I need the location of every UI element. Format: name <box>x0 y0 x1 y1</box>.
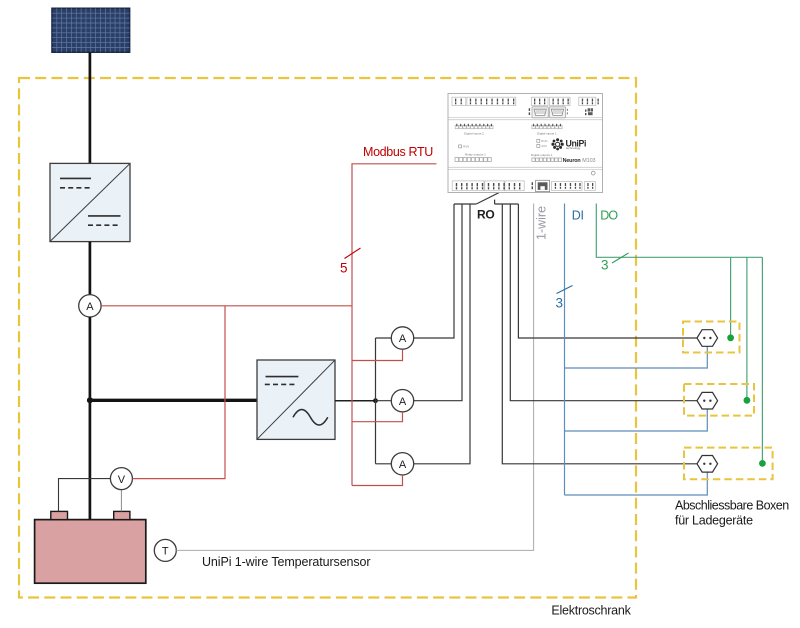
svg-text:3: 3 <box>556 296 564 311</box>
svg-text:RUN: RUN <box>541 139 547 143</box>
svg-text:technology: technology <box>566 146 581 150</box>
svg-text:A: A <box>86 301 94 313</box>
svg-text:3: 3 <box>601 258 609 273</box>
svg-text:A: A <box>399 396 407 408</box>
svg-text:Modbus RTU: Modbus RTU <box>363 145 433 159</box>
svg-text:Abschliessbare Boxen: Abschliessbare Boxen <box>675 499 789 513</box>
svg-text:Digital inputs 1: Digital inputs 1 <box>537 131 557 135</box>
svg-text:DO: DO <box>600 208 618 222</box>
svg-text:RUN: RUN <box>463 145 469 149</box>
svg-text:Digital inputs 2: Digital inputs 2 <box>464 131 484 135</box>
svg-text:Neuron: Neuron <box>563 158 581 164</box>
svg-text:M103: M103 <box>582 158 595 164</box>
svg-text:Relay outputs 1: Relay outputs 1 <box>465 153 486 157</box>
svg-text:RO: RO <box>477 208 494 222</box>
svg-text:A: A <box>399 333 407 345</box>
svg-text:1-wire: 1-wire <box>535 206 549 240</box>
svg-text:Elektroschrank: Elektroschrank <box>551 604 631 618</box>
svg-text:V: V <box>118 474 126 486</box>
svg-text:T: T <box>162 546 169 558</box>
svg-text:DI: DI <box>572 208 584 222</box>
svg-text:UniPi 1-wire Temperatursensor: UniPi 1-wire Temperatursensor <box>202 555 370 569</box>
svg-text:Digital outputs 1: Digital outputs 1 <box>531 153 553 157</box>
svg-text:für Ladegeräte: für Ladegeräte <box>675 514 753 528</box>
svg-text:AUX: AUX <box>541 144 547 148</box>
svg-text:A: A <box>399 459 407 471</box>
svg-text:5: 5 <box>340 261 348 276</box>
